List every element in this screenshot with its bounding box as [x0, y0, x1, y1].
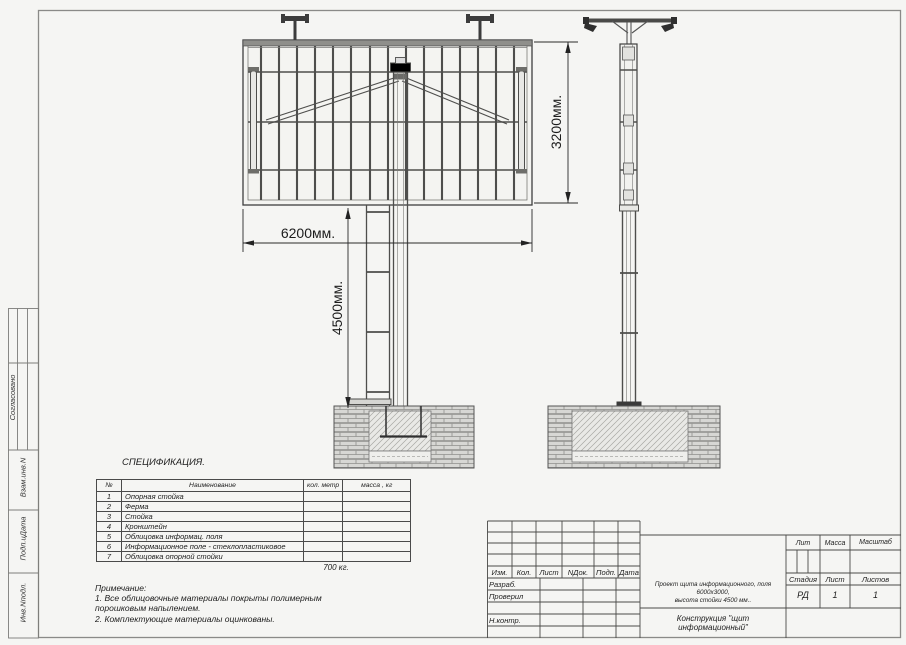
notes-line: порошковым напылением. — [95, 603, 375, 613]
tb-role-razrab: Разраб. — [489, 579, 516, 590]
tb-scale-label: Масштаб — [850, 537, 901, 548]
tb-col-podp: Подп. — [594, 567, 618, 578]
tb-mass-label: Масса — [820, 538, 850, 549]
spec-row: 4Кронштейн — [97, 522, 411, 532]
spec-row: 6Информационное поле - стеклопластиковое — [97, 542, 411, 552]
tb-col-data: Дата — [618, 567, 640, 578]
dimension-panel-height: 3200мм. — [534, 42, 578, 203]
tb-sheet-label: Лист — [820, 574, 850, 585]
notes-block: Примечание: 1. Все облицовочные материал… — [95, 583, 375, 624]
billboard-side-view — [548, 17, 720, 468]
tb-stage-label: Стадия — [786, 574, 820, 585]
tb-col-kol: Кол. — [512, 567, 536, 578]
ladder — [349, 205, 391, 413]
notes-title: Примечание: — [95, 583, 375, 593]
spec-row: 5Облицовка информац. поля — [97, 532, 411, 542]
support-pole-side — [617, 205, 642, 433]
tb-project-description: Проект щита информационного, поля 6000х3… — [642, 581, 784, 605]
tb-sheets-label: Листов — [850, 574, 901, 585]
tb-col-izm: Изм. — [487, 567, 512, 578]
margin-label-inv-podl: Инв.Nподл. — [19, 570, 28, 636]
spec-col-mass: масса , кг — [343, 480, 411, 492]
billboard-front-view — [243, 14, 532, 468]
dim-stand-height-label: 4500мм. — [329, 281, 345, 335]
margin-label-soglasovano: Согласовано — [8, 355, 17, 440]
spec-total-mass: 700 кг. — [286, 563, 386, 572]
tb-role-proveril: Проверил — [489, 591, 523, 602]
spec-row: 2Ферма — [97, 502, 411, 512]
notes-line: 2. Комплектующие материалы оцинкованы. — [95, 614, 375, 624]
tb-lit-label: Лит — [786, 538, 820, 549]
spec-row: 3Стойка — [97, 512, 411, 522]
foundation-side — [548, 406, 720, 468]
tb-stage-value: РД — [786, 590, 820, 601]
tb-sheet-value: 1 — [820, 590, 850, 601]
tb-col-list: Лист — [536, 567, 562, 578]
tb-role-nkontr: Н.контр. — [489, 615, 521, 626]
dim-panel-height-label: 3200мм. — [548, 95, 564, 149]
spec-col-name: Наименование — [122, 480, 304, 492]
spec-table: № Наименование кол. метр масса , кг 1Опо… — [96, 479, 411, 562]
tb-col-ndok: NДок. — [562, 567, 594, 578]
tb-sheets-value: 1 — [850, 590, 901, 601]
panel-side — [620, 44, 637, 205]
margin-label-podp-data: Подп.иДата — [19, 507, 28, 571]
spec-col-num: № — [97, 480, 122, 492]
dim-width-label: 6200мм. — [281, 225, 335, 241]
dimension-width: 6200мм. — [243, 209, 532, 252]
lamp-crossbar — [583, 17, 677, 46]
spec-title: СПЕЦИФИКАЦИЯ. — [122, 457, 205, 468]
foundation-front — [334, 406, 474, 468]
spec-row: 7Облицовка опорной стойки — [97, 552, 411, 562]
notes-line: 1. Все облицовочные материалы покрыты по… — [95, 593, 375, 603]
spec-row: 1Опорная стойка — [97, 492, 411, 502]
tb-construction-title: Конструкция "щит информационный" — [642, 614, 784, 632]
spec-header-row: № Наименование кол. метр масса , кг — [97, 480, 411, 492]
spec-col-qty: кол. метр — [304, 480, 343, 492]
margin-label-vzam-inv: Взам.инв.N — [19, 448, 28, 508]
drawing-sheet: 6200мм. 4500мм. 3200мм. Согласовано Взам… — [0, 0, 906, 645]
